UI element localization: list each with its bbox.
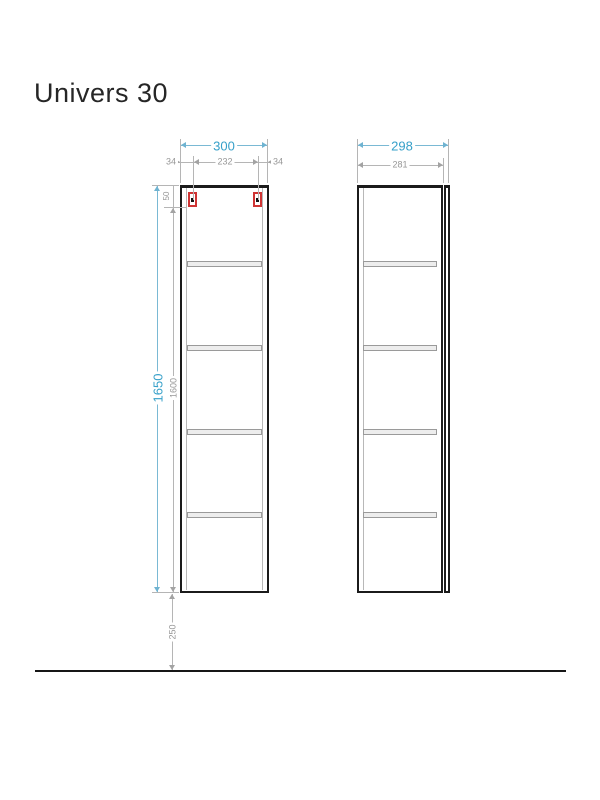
dim-depth-total: 298 [389,140,415,153]
arrowhead [169,594,175,599]
arrowhead [154,587,160,592]
front-right-inner-wall-line [262,188,263,590]
arrowhead [170,208,176,213]
side-shelf [363,261,437,267]
dim-width-inner: 232 [215,158,234,167]
dim-height-inner: 1600 [170,376,179,400]
arrowhead [181,142,186,148]
dim-width-right: 34 [271,158,285,167]
side-shelf [363,429,437,435]
arrowhead [358,142,363,148]
side-inner-wall-line [363,188,364,590]
dim-width-total: 300 [211,140,237,153]
front-shelf [187,345,262,351]
side-view-door-panel [444,185,450,593]
dim-bracket-offset: 50 [163,190,171,203]
arrowhead [438,162,443,168]
side-shelf [363,345,437,351]
side-shelf [363,512,437,518]
front-view-cabinet-outline [180,185,269,593]
arrowhead [262,142,267,148]
dim-depth-body: 281 [390,161,409,170]
dim-height-total: 1650 [152,372,165,405]
arrowhead [253,159,258,165]
extension-line-bottom [152,592,179,593]
dimension-line-bracket-offset [173,186,174,207]
extension-line-bracket-right [258,156,259,200]
extension-line [443,158,444,183]
drawing-title: Univers 30 [34,78,168,109]
arrowhead [358,162,363,168]
arrowhead [194,159,199,165]
arrowhead [443,142,448,148]
dim-floor-gap: 250 [169,622,178,641]
floor-line [35,670,566,672]
extension-line [448,139,449,183]
side-view-cabinet-outline [357,185,443,593]
arrowhead [170,587,176,592]
dim-width-left: 34 [164,158,178,167]
front-shelf [187,512,262,518]
arrowhead [154,186,160,191]
front-left-inner-wall-line [186,188,187,590]
technical-drawing: Univers 30 300 34 232 34 298 281 [0,0,600,800]
front-shelf [187,429,262,435]
front-shelf [187,261,262,267]
